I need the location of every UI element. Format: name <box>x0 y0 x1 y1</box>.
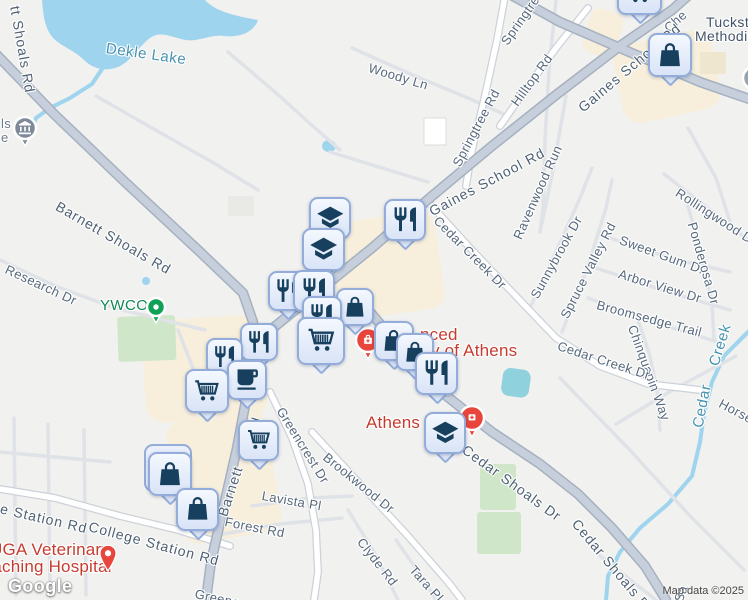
bag-icon <box>183 494 212 523</box>
marker-museum[interactable] <box>11 114 39 155</box>
poi-label[interactable]: YWCO <box>100 297 148 314</box>
marker-ywco[interactable] <box>144 295 168 332</box>
road-label: e <box>1 130 9 145</box>
marker-shopping-bag[interactable] <box>176 488 219 531</box>
marker-pin-uga[interactable] <box>97 543 119 579</box>
building <box>424 118 446 145</box>
school-icon <box>431 418 460 447</box>
marker-restaurant[interactable] <box>384 199 426 241</box>
marker-shopping-cart[interactable] <box>617 0 662 15</box>
cart-icon <box>192 376 222 406</box>
bag-icon <box>155 459 185 489</box>
road <box>330 152 428 182</box>
google-logo[interactable]: Google <box>8 576 72 597</box>
plain-icon <box>740 64 748 100</box>
building <box>700 52 726 74</box>
road <box>0 452 110 462</box>
pond <box>142 277 150 285</box>
cart-icon <box>245 426 273 454</box>
marker-school[interactable] <box>302 228 345 271</box>
bag-icon <box>655 40 685 70</box>
restaurant-icon <box>422 358 451 387</box>
road-label: ls <box>1 116 11 131</box>
pin-icon <box>97 543 119 574</box>
road <box>228 52 340 150</box>
museum-icon <box>11 114 39 150</box>
marker-shopping-cart[interactable] <box>297 317 345 365</box>
pond <box>500 367 532 399</box>
marker-school[interactable] <box>424 412 466 454</box>
cafe-icon <box>233 366 260 393</box>
marker-restaurant[interactable] <box>415 352 458 395</box>
map-attribution: Map data ©2025 <box>663 585 745 597</box>
marker-restaurant[interactable] <box>240 323 278 361</box>
marker-shopping-bag[interactable] <box>648 33 692 77</box>
poi-label[interactable]: Teaching Hospital <box>0 557 112 577</box>
school-icon <box>309 234 338 263</box>
map-canvas[interactable]: tt Shoals RdDekle LakelseBarnett Shoals … <box>0 0 748 600</box>
poi-label[interactable]: Methodist <box>695 28 748 44</box>
building <box>228 196 254 216</box>
cart-icon <box>624 0 655 7</box>
park-area <box>477 512 521 554</box>
marker-cafe[interactable] <box>227 360 267 400</box>
cart-icon <box>305 324 338 357</box>
dot-icon <box>144 295 168 327</box>
restaurant-icon <box>391 205 420 234</box>
marker-shopping-cart[interactable] <box>238 420 279 461</box>
bag-icon <box>342 294 368 320</box>
marker-partial-circle[interactable] <box>740 64 748 105</box>
marker-shopping-cart[interactable] <box>185 369 229 413</box>
restaurant-icon <box>246 329 272 355</box>
